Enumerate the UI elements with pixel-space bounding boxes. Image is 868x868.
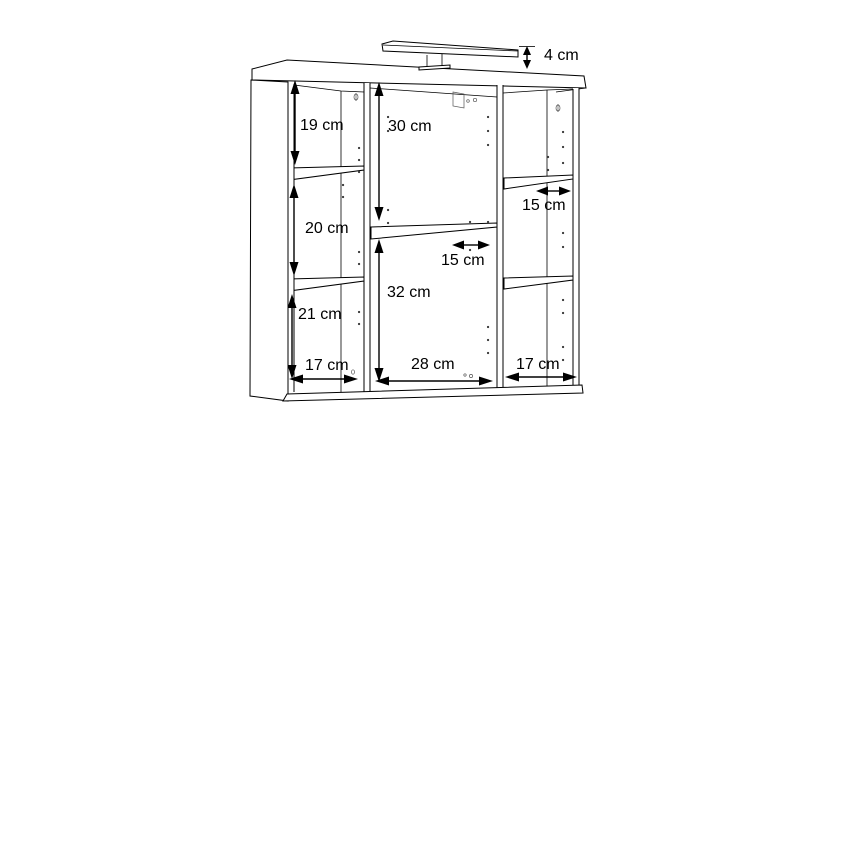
arrowhead-right (479, 377, 493, 386)
left-side-panel-face (250, 80, 288, 401)
shelf-left-lower (289, 277, 364, 291)
shelf-right-upper (504, 175, 573, 189)
dimension-left-width: 17 cm (289, 357, 358, 384)
left-wall-face (288, 82, 294, 393)
back-edge-left-section (294, 85, 364, 92)
dimension-label-17cm-left: 17 cm (305, 357, 349, 374)
dimension-left-top: 19 cm (291, 80, 344, 165)
shelf-left-upper (289, 166, 364, 180)
arrowhead-right (344, 375, 358, 384)
dimension-center-top: 30 cm (375, 82, 432, 221)
dimension-right-shelf-depth: 15 cm (522, 187, 571, 215)
screw-hole-bottom-1 (464, 374, 466, 376)
arrowhead-up (523, 46, 531, 55)
dimension-label-17cm-right: 17 cm (516, 356, 560, 373)
bottom-board (283, 385, 583, 401)
dimension-label-32cm: 32 cm (387, 284, 431, 301)
dimension-label-15cm-right: 15 cm (522, 197, 566, 214)
arrowhead-down (523, 60, 531, 69)
dimension-label-19cm: 19 cm (300, 117, 344, 134)
right-wall-face (573, 88, 579, 388)
back-edge-center-section (370, 88, 497, 97)
arrowhead-right (559, 187, 571, 196)
left-side-panel (250, 80, 288, 401)
arrowhead-left (452, 241, 464, 250)
top-board-outline (252, 60, 586, 88)
top-board (252, 60, 586, 92)
arrowhead-up (375, 239, 384, 253)
dimension-center-width: 28 cm (375, 356, 493, 386)
dimension-label-30cm: 30 cm (388, 118, 432, 135)
divider-2-face (497, 85, 503, 389)
diagram-canvas: 4 cm 19 cm 20 cm 21 cm 30 cm 32 cm (0, 0, 868, 868)
shelf-right-lower (504, 276, 573, 289)
top-board-underside-edge (556, 88, 586, 92)
dimension-label-28cm: 28 cm (411, 356, 455, 373)
light-bar (382, 41, 518, 57)
arrowhead-right (478, 241, 490, 250)
arrowhead-left (375, 377, 389, 386)
screw-hole-bottom-2 (469, 374, 472, 377)
dimension-label-4cm: 4 cm (544, 47, 579, 64)
light-fixture (382, 41, 518, 70)
screw-hole-bottom-left (352, 370, 355, 374)
cabinet-dimension-diagram: 4 cm 19 cm 20 cm 21 cm 30 cm 32 cm (0, 0, 868, 868)
dimension-right-width: 17 cm (505, 356, 577, 382)
screw-hole-top-1 (467, 100, 470, 103)
screw-hole-top-2 (473, 98, 476, 101)
dimension-light-height: 4 cm (519, 46, 579, 69)
arrowhead-left (536, 187, 548, 196)
arrowhead-left (505, 373, 519, 382)
dimension-center-shelf-depth: 15 cm (441, 241, 490, 270)
dimension-label-20cm: 20 cm (305, 220, 349, 237)
divider-1-face (364, 83, 370, 392)
dimension-left-middle: 20 cm (290, 184, 349, 276)
shelf-center (371, 223, 497, 239)
arrowhead-down (375, 207, 384, 221)
dimension-label-15cm-center: 15 cm (441, 252, 485, 269)
dimension-label-21cm: 21 cm (298, 306, 342, 323)
